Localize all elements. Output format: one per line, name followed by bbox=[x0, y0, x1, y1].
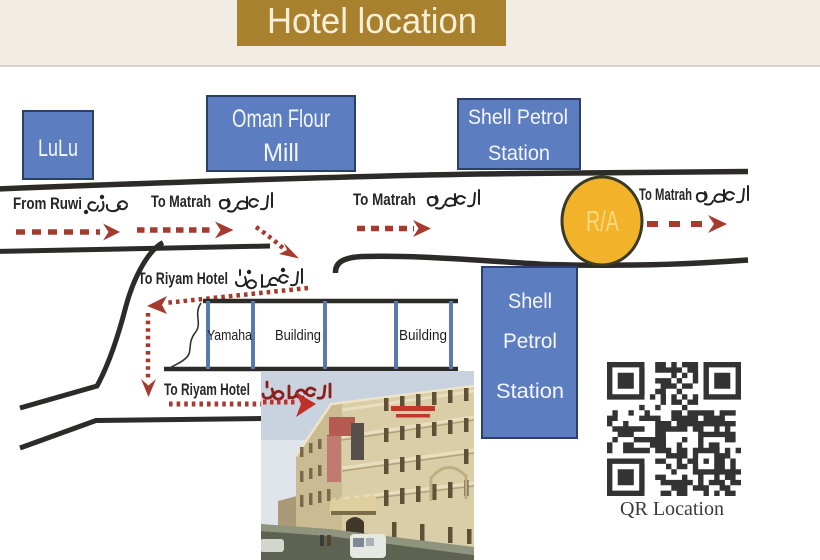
svg-text:To Matrah: To Matrah bbox=[151, 193, 211, 211]
svg-text:QR Location: QR Location bbox=[620, 498, 724, 520]
svg-text:Building: Building bbox=[275, 327, 321, 344]
svg-text:Building: Building bbox=[399, 327, 447, 344]
svg-text:From Ruwi: From Ruwi bbox=[13, 195, 82, 213]
svg-text:Petrol: Petrol bbox=[503, 330, 557, 353]
svg-text:To Riyam Hotel: To Riyam Hotel bbox=[138, 270, 228, 288]
svg-text:LuLu: LuLu bbox=[38, 135, 78, 162]
svg-text:To Riyam Hotel: To Riyam Hotel bbox=[164, 381, 250, 399]
svg-text:Hotel location: Hotel location bbox=[267, 0, 477, 41]
svg-text:Oman Flour: Oman Flour bbox=[232, 105, 330, 133]
svg-text:Mill: Mill bbox=[263, 139, 299, 167]
svg-text:Shell: Shell bbox=[508, 290, 552, 313]
svg-text:To Matrah: To Matrah bbox=[639, 186, 692, 204]
svg-text:To Matrah: To Matrah bbox=[353, 191, 416, 209]
svg-text:Station: Station bbox=[488, 142, 550, 165]
svg-text:Yamaha: Yamaha bbox=[207, 327, 253, 344]
svg-text:Station: Station bbox=[496, 380, 564, 403]
svg-text:Shell Petrol: Shell Petrol bbox=[468, 106, 568, 129]
svg-text:R/A: R/A bbox=[586, 206, 619, 238]
